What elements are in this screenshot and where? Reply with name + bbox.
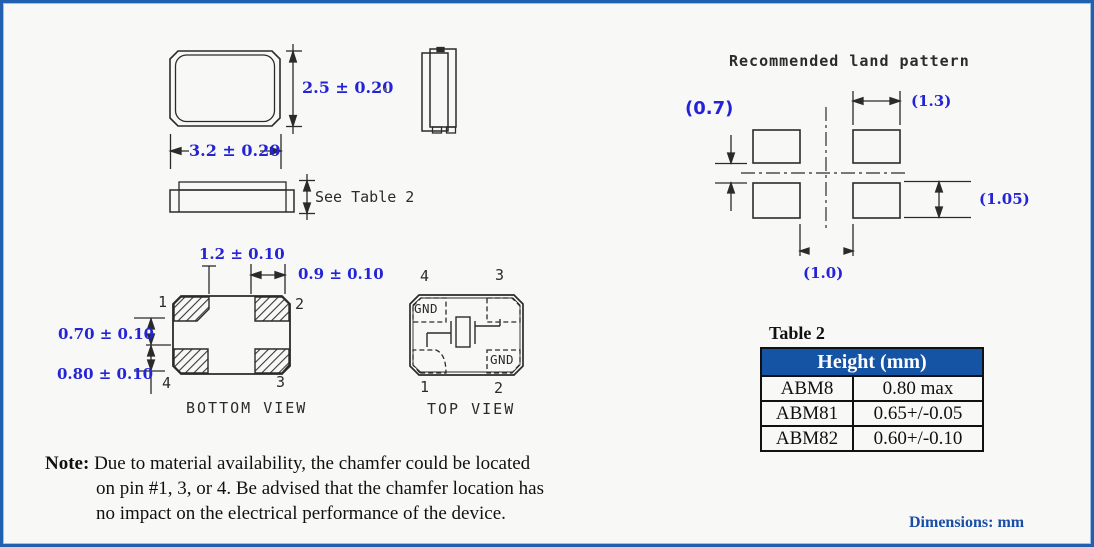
note-line-2: on pin #1, 3, or 4. Be advised that the …	[96, 476, 544, 501]
side-view-drawing	[170, 174, 315, 220]
front-height-dim: 2.5 ± 0.20	[302, 78, 393, 97]
bottom-view-pin-2: 2	[295, 295, 304, 313]
table2-header: Height (mm)	[761, 348, 983, 376]
bottom-view-pin-1: 1	[158, 293, 167, 311]
table2-header-row: Height (mm)	[761, 348, 983, 376]
bottom-pad-offset-dim: 1.2 ± 0.10	[199, 245, 285, 263]
height-cell: 0.60+/-0.10	[853, 426, 983, 451]
bottom-view-drawing	[134, 264, 290, 394]
note-text-1: Due to material availability, the chamfe…	[94, 453, 530, 474]
height-cell: 0.80 max	[853, 376, 983, 401]
bottom-pad-width-dim: 0.9 ± 0.10	[298, 265, 384, 283]
front-width-dim: 3.2 ± 0.20	[189, 141, 280, 160]
bottom-pad-height-dim: 0.80 ± 0.10	[57, 365, 153, 383]
gnd-label-bottom-right: GND	[490, 352, 514, 367]
side-height-ref-label: See Table 2	[315, 188, 414, 206]
side-profile-drawing	[422, 48, 456, 134]
bottom-view-pin-3: 3	[276, 373, 285, 391]
land-pattern-gap-h-dim: (1.0)	[803, 264, 843, 282]
model-cell: ABM81	[761, 401, 853, 426]
land-pattern-pad-height-dim: (1.05)	[979, 190, 1030, 208]
bottom-view-title: BOTTOM VIEW	[186, 399, 307, 417]
bottom-pad-gap-dim: 0.70 ± 0.10	[58, 325, 154, 343]
table2-title: Table 2	[769, 323, 825, 344]
land-pattern-pad-width-dim: (1.3)	[911, 92, 951, 110]
land-pattern-title: Recommended land pattern	[729, 52, 970, 70]
gnd-label-top-left: GND	[414, 301, 438, 316]
datasheet-page: 2.5 ± 0.20 3.2 ± 0.20 See Table 2 1.2 ± …	[0, 0, 1094, 547]
land-pattern-gap-v-dim: (0.7)	[685, 98, 733, 119]
table-row: ABM81 0.65+/-0.05	[761, 401, 983, 426]
top-view-pin-1: 1	[420, 378, 429, 396]
top-view-pin-3: 3	[495, 266, 504, 284]
model-cell: ABM8	[761, 376, 853, 401]
land-pattern-drawing	[715, 91, 971, 256]
table2: Height (mm) ABM8 0.80 max ABM81 0.65+/-0…	[760, 347, 984, 452]
table-row: ABM82 0.60+/-0.10	[761, 426, 983, 451]
top-view-pin-2: 2	[494, 379, 503, 397]
height-cell: 0.65+/-0.05	[853, 401, 983, 426]
table-row: ABM8 0.80 max	[761, 376, 983, 401]
top-view-pin-4: 4	[420, 267, 429, 285]
dimensions-unit-label: Dimensions: mm	[909, 514, 1024, 532]
note-label: Note:	[45, 453, 89, 474]
note-line-1: Note: Due to material availability, the …	[45, 451, 544, 476]
top-view-title: TOP VIEW	[427, 400, 515, 418]
chamfer-note: Note: Due to material availability, the …	[45, 451, 544, 526]
model-cell: ABM82	[761, 426, 853, 451]
bottom-view-pin-4: 4	[162, 374, 171, 392]
stray-dot	[384, 88, 387, 91]
note-line-3: no impact on the electrical performance …	[96, 501, 544, 526]
